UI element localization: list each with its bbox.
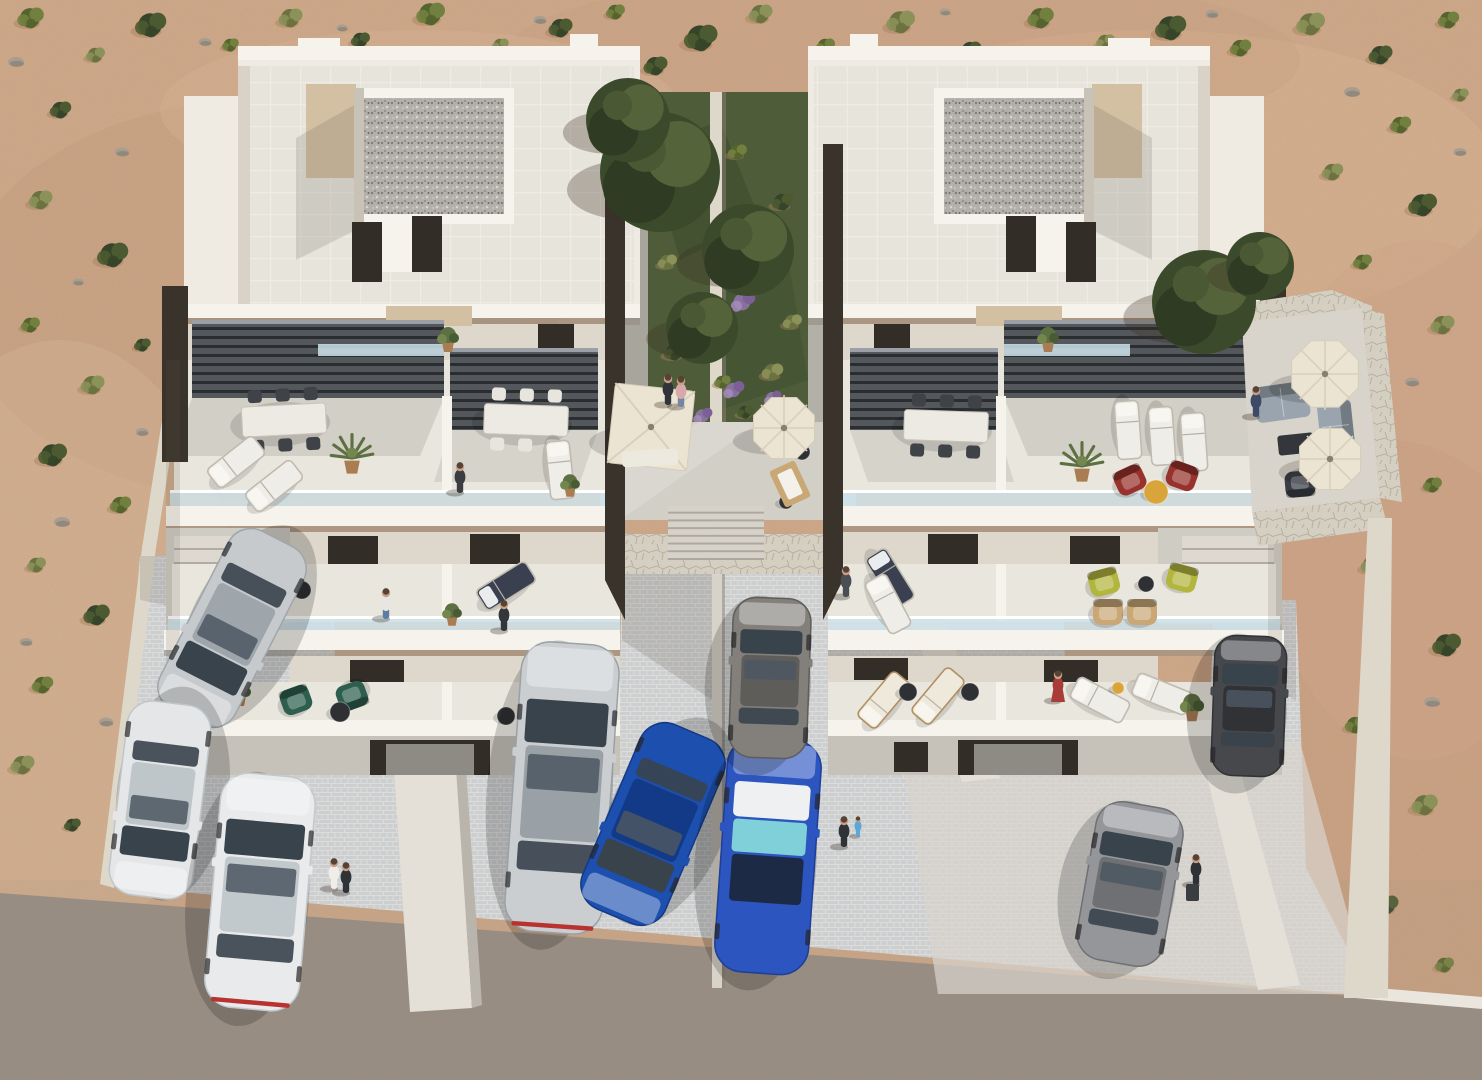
step-tread (1182, 550, 1274, 564)
car-wheel (728, 725, 734, 741)
bush-foliage (1329, 172, 1337, 180)
mid-opening (928, 534, 978, 564)
step-riser (668, 535, 764, 537)
bush-foliage (107, 256, 119, 268)
armchair (1122, 599, 1157, 628)
rock (534, 16, 547, 24)
person-hair (1193, 854, 1200, 861)
pergola-edge (850, 348, 998, 352)
dining-chair (518, 438, 532, 451)
rock (136, 428, 149, 436)
tree-canopy (680, 303, 705, 328)
car-hood (1221, 640, 1282, 662)
bush-foliage (664, 262, 671, 269)
parapet-bump (298, 38, 340, 50)
rock (20, 638, 33, 646)
bush-foliage (48, 456, 59, 467)
person-torso (329, 865, 340, 881)
car-wheel (803, 727, 809, 743)
terrace-divider (996, 564, 1006, 622)
lounger-pillow (1182, 414, 1203, 428)
bush-foliage (1418, 206, 1429, 217)
rock-shade (338, 27, 348, 31)
bush-foliage (769, 372, 777, 380)
stairbox-gravel-roof (944, 98, 1084, 214)
roof-access-door (412, 216, 442, 272)
door-divider-wall (382, 218, 412, 272)
person-hair (843, 566, 850, 573)
terrace-divider (442, 682, 452, 722)
person-hair (678, 376, 685, 383)
dining-table (904, 410, 989, 443)
person-hair (383, 588, 390, 595)
parapet-bump (570, 34, 598, 50)
bush-foliage (695, 39, 708, 52)
bush-foliage (92, 616, 102, 626)
upper-rail-frame (828, 490, 1278, 493)
chair-back (1127, 599, 1157, 607)
car-mirror (611, 754, 617, 763)
plaza-bench (622, 449, 679, 468)
stairbox-west-face (354, 88, 364, 224)
tree-canopy (1240, 242, 1264, 266)
car-windshield (224, 818, 306, 860)
person-hair (665, 374, 672, 381)
dining-chair (548, 389, 562, 402)
umbrella-pole (781, 425, 787, 431)
person-torso (455, 469, 466, 485)
car-roof-cover (733, 781, 811, 821)
plant-foliage (437, 334, 447, 344)
bush-foliage (70, 825, 76, 831)
bush-foliage (57, 110, 65, 118)
lounger-pillow (1150, 408, 1171, 422)
bush-foliage (140, 345, 146, 351)
parapet-bump (850, 34, 878, 50)
aerial-architectural-render (0, 0, 1482, 1080)
car-wheel (1210, 747, 1216, 763)
step-riser (668, 527, 764, 529)
bush-foliage (1165, 29, 1177, 41)
chair-back (1093, 599, 1123, 607)
car-windshield (731, 818, 807, 856)
rock-shade (1207, 13, 1218, 18)
person-hair (1055, 670, 1062, 677)
rock (54, 517, 70, 527)
plant-foliage (571, 480, 580, 489)
rock-shade (21, 641, 32, 646)
dining-chair (275, 388, 290, 402)
person-torso (676, 383, 687, 399)
palm-core (347, 448, 357, 458)
rock-shade (1426, 701, 1440, 707)
rock-shade (10, 61, 24, 67)
lounger-pillow (547, 442, 568, 457)
rock-shade (137, 431, 148, 436)
bush-foliage (1036, 19, 1046, 29)
mid-opening (328, 536, 378, 568)
terrace-divider (442, 396, 452, 492)
rock (1344, 87, 1360, 97)
aerial-render-stage (0, 0, 1482, 1080)
pergola (192, 322, 444, 398)
bush-foliage (757, 15, 766, 24)
bush-foliage (37, 201, 46, 210)
rock (199, 38, 212, 46)
bush-foliage (1306, 25, 1317, 36)
chair-cushion (1133, 607, 1151, 620)
dining-chair (490, 437, 504, 450)
person-hair (343, 862, 350, 869)
bush-foliage (27, 325, 34, 332)
parapet-bump (1108, 38, 1150, 50)
dining-chair (912, 393, 926, 406)
car-windshield (740, 629, 803, 655)
scene-root (0, 0, 1482, 1080)
umbrella-pole (1322, 371, 1328, 377)
bush-foliage (1420, 806, 1430, 816)
person-torso (1191, 861, 1202, 877)
lounger-pillow (1116, 402, 1137, 416)
person-hair (856, 816, 860, 820)
dining-chair (492, 387, 506, 400)
person-hair (457, 462, 464, 469)
suitcase (1186, 884, 1199, 901)
person-torso (663, 381, 674, 397)
dining-chair (968, 395, 982, 408)
bush-foliage (896, 23, 907, 34)
car-mirror (512, 747, 518, 756)
car-cockpit (729, 853, 804, 905)
plant-foliage (560, 481, 569, 490)
stairbox-gravel-roof (364, 98, 504, 214)
terrace-divider (996, 396, 1006, 492)
terrace-divider (996, 682, 1006, 722)
bush-foliage (92, 55, 99, 62)
flowers (723, 389, 733, 399)
upper-slab (828, 506, 1282, 526)
bush-foliage (89, 386, 98, 395)
car-rear-glass (1221, 732, 1275, 748)
car-sunroof (1226, 690, 1273, 708)
car-mirror (807, 659, 812, 668)
bush-foliage (789, 322, 796, 329)
rock-shade (200, 41, 211, 46)
bush-foliage (1442, 646, 1453, 657)
entry-door (894, 742, 928, 772)
car-sunroof (526, 754, 600, 794)
dining-chair (303, 387, 318, 401)
plant-foliage (442, 610, 451, 619)
step-riser (668, 512, 764, 514)
plant-pot (344, 461, 360, 474)
car-mirror (720, 822, 726, 831)
umbrella-pole (648, 424, 654, 430)
car-wheel (1282, 668, 1288, 684)
dining-chair (938, 444, 952, 457)
rock (336, 25, 347, 32)
plant-foliage (1037, 334, 1047, 344)
person-hair (331, 858, 338, 865)
rock (72, 279, 83, 286)
car-hood (739, 602, 806, 627)
rock-shade (56, 521, 70, 527)
garage-door (386, 744, 474, 775)
car-wheel (1279, 749, 1285, 765)
dining-chair (520, 388, 534, 401)
roof-access-door (1066, 222, 1096, 282)
bush-foliage (1377, 56, 1386, 65)
dining-chair (247, 390, 262, 404)
upper-slab (166, 506, 620, 526)
step-riser (668, 543, 764, 545)
chair-cushion (1099, 607, 1117, 620)
dining-chair (306, 437, 321, 451)
rock (1206, 10, 1219, 18)
rock-shade (535, 19, 546, 24)
person-hair (1253, 386, 1260, 393)
car-windshield (524, 698, 609, 747)
car-mirror (1283, 689, 1288, 698)
rock (1424, 697, 1440, 707)
bush-foliage (779, 202, 787, 210)
rock (939, 9, 950, 16)
armchair (1088, 599, 1123, 628)
plant-foliage (1049, 333, 1059, 343)
step-riser (668, 550, 764, 552)
roof-access-door (1006, 216, 1036, 272)
person-torso (854, 821, 861, 831)
bush-foliage (1397, 125, 1405, 133)
plant-pot (1074, 469, 1090, 482)
upper-rail-glass (828, 492, 1278, 506)
rock (8, 57, 24, 67)
tree-canopy (720, 218, 752, 250)
step-riser (668, 558, 764, 560)
bush-foliage (19, 766, 28, 775)
rock-shade (1407, 381, 1420, 386)
garden-side-fin (823, 144, 843, 620)
bush-foliage (652, 67, 661, 76)
plaza-stairs (668, 506, 764, 560)
rock-shade (1346, 91, 1360, 97)
person-hair (841, 816, 848, 823)
bush-foliage (1439, 326, 1448, 335)
person-torso (381, 595, 392, 611)
bush-foliage (39, 685, 47, 693)
car-sunroof (744, 660, 797, 681)
ground-opening (1044, 660, 1098, 682)
bush-foliage (720, 382, 726, 388)
dining-table (241, 403, 326, 437)
bush-foliage (117, 505, 125, 513)
rock (1405, 378, 1419, 387)
bush-foliage (426, 15, 437, 26)
rock (115, 148, 129, 157)
step-riser (1182, 548, 1274, 550)
bush-foliage (734, 152, 741, 159)
car-hood (526, 645, 615, 692)
car-mirror (212, 857, 218, 866)
person-hair (501, 600, 508, 607)
door-divider-wall (1036, 218, 1066, 272)
umbrella-pole (1327, 456, 1333, 462)
roof-glass-rail (318, 344, 444, 356)
pergola-edge (450, 348, 598, 352)
step-riser (668, 519, 764, 521)
stairbox-west-face (1084, 88, 1094, 224)
garage-door (974, 744, 1062, 775)
plant-foliage (453, 609, 462, 618)
bush-foliage (33, 565, 40, 572)
bush-foliage (743, 412, 749, 418)
roof-glass-rail (1004, 344, 1130, 356)
mid-opening (1070, 536, 1120, 568)
bush-foliage (1445, 20, 1453, 28)
person-torso (341, 869, 352, 885)
rock-shade (1455, 151, 1466, 156)
dining-chair (910, 443, 924, 456)
rock (1454, 148, 1467, 156)
plant-foliage (449, 333, 459, 343)
bush-foliage (557, 29, 566, 38)
car-windshield (1222, 663, 1279, 686)
person-torso (1053, 677, 1064, 693)
dining-chair (278, 438, 293, 452)
flowers (703, 408, 713, 418)
car-mirror (728, 656, 733, 665)
rock-shade (941, 11, 951, 15)
rock-shade (74, 281, 84, 285)
bush-foliage (26, 19, 36, 29)
tree-canopy (603, 91, 632, 120)
car-mirror (1210, 686, 1215, 695)
rock-shade (117, 151, 130, 156)
bush-foliage (287, 19, 296, 28)
rock (99, 718, 113, 727)
car-mirror (307, 866, 313, 875)
person-torso (1251, 393, 1262, 409)
tree-canopy (1173, 266, 1209, 302)
person-torso (499, 607, 510, 623)
car-mirror (814, 829, 820, 838)
roof-west-shade (238, 66, 250, 306)
bush-foliage (1359, 262, 1366, 269)
rock-shade (101, 721, 114, 726)
bush-foliage (1429, 485, 1436, 492)
car-wheel (731, 632, 737, 648)
person-torso (841, 573, 852, 589)
car-wheel (1213, 666, 1219, 682)
dining-chair (966, 445, 980, 458)
car-sunroof (225, 863, 296, 897)
bush-foliage (1458, 95, 1464, 101)
car-rear-glass (738, 707, 799, 725)
dining-chair (940, 394, 954, 407)
bush-foliage (228, 45, 234, 51)
bush-foliage (1237, 48, 1245, 56)
bush-foliage (145, 26, 157, 38)
palm-core (1077, 456, 1087, 466)
roof-access-door (352, 222, 382, 282)
step-riser (1182, 562, 1274, 564)
flowers (734, 381, 745, 392)
mid-opening (470, 534, 520, 564)
pergola-edge (192, 320, 444, 324)
car-wheel (806, 634, 812, 650)
dining-table (484, 404, 569, 437)
bush-foliage (612, 12, 619, 19)
person-torso (839, 823, 850, 839)
